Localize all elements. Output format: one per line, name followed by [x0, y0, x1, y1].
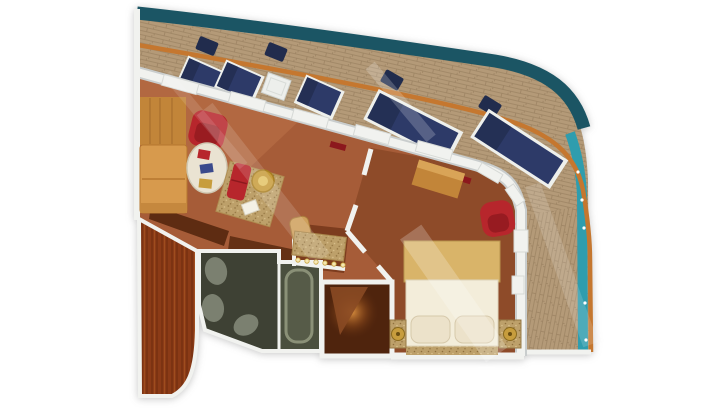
wall-window	[514, 230, 528, 252]
vanity-light	[305, 259, 309, 263]
railing-post	[580, 198, 583, 201]
magazine	[200, 163, 214, 174]
floor-plan	[137, 9, 598, 396]
storage-cabinet	[140, 97, 186, 145]
sectional-sofa	[140, 145, 187, 213]
railing-post	[576, 170, 579, 173]
railing-post	[582, 226, 585, 229]
wall-window	[512, 276, 524, 294]
coffee-table	[187, 143, 227, 193]
vanity-light	[323, 261, 327, 265]
magazine	[199, 178, 213, 188]
bed-pillow	[411, 316, 450, 343]
vanity-light	[341, 263, 345, 267]
vanity-light	[296, 258, 300, 262]
floor-plan-canvas	[0, 0, 726, 409]
nightstand	[390, 320, 406, 348]
vanity-light	[332, 262, 336, 266]
bathtub	[286, 270, 312, 342]
